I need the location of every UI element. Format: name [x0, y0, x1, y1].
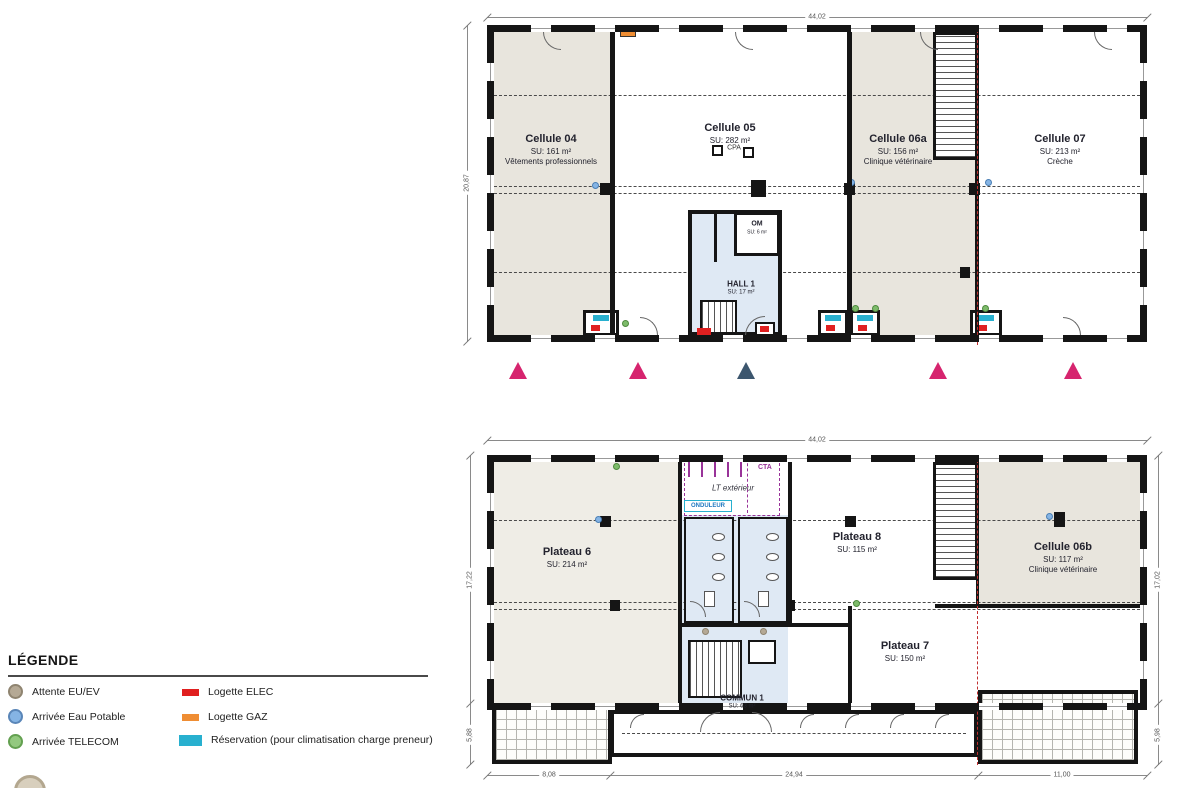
entry-triangle-pink	[629, 362, 647, 379]
room-label-plateau-7: Plateau 7 SU: 150 m²	[810, 640, 1000, 664]
dimension-line	[487, 775, 1147, 776]
room-area: SU: 63 m²	[647, 703, 837, 711]
door-arc	[1063, 317, 1081, 335]
partition-wall	[678, 623, 850, 627]
eau-dot	[985, 179, 992, 186]
door-arc	[1094, 32, 1112, 50]
joint-line	[977, 25, 978, 345]
wall-corner	[1140, 703, 1147, 710]
wall-corner	[487, 703, 494, 710]
door-arc	[735, 32, 753, 50]
room-area: SU: 17 m²	[646, 289, 836, 297]
room-area: SU: 150 m²	[810, 654, 1000, 664]
eau-dot	[592, 182, 599, 189]
legend-item-reservation: Réservation (pour climatisation charge p…	[179, 734, 433, 746]
dashed-gridline	[494, 520, 1140, 521]
exterior-wall	[487, 335, 1147, 342]
partition-wall	[610, 32, 615, 335]
cellule-06b-area	[978, 462, 1140, 604]
telecom-icon	[8, 734, 23, 749]
legend-item-label: Arrivée Eau Potable	[32, 711, 125, 723]
legend-title: LÉGENDE	[8, 652, 78, 668]
gridline-node	[610, 600, 620, 611]
telecom-dot	[622, 320, 629, 327]
reservation-mark	[825, 315, 841, 321]
hall-label: HALL 1 SU: 17 m²	[646, 279, 836, 297]
room-title: Cellule 06b	[968, 541, 1158, 555]
heater-fixture	[704, 591, 715, 607]
reservation-mark	[978, 315, 994, 321]
elec-mark	[591, 325, 600, 331]
room-area: SU: 6 m²	[662, 229, 852, 235]
wall-corner	[487, 335, 494, 342]
legend-item-eau-potable: Arrivée Eau Potable	[8, 709, 125, 724]
logette-elec-icon	[182, 689, 199, 696]
dimension-line	[470, 455, 471, 765]
commun-stair	[688, 640, 742, 698]
eau-dot	[595, 516, 602, 523]
elec-mark	[760, 326, 769, 332]
room-label-cellule-07: Cellule 07 SU: 213 m² Crèche	[965, 133, 1155, 167]
exterior-wall	[1140, 25, 1147, 342]
logette-alcove	[818, 310, 848, 336]
room-label-plateau-8: Plateau 8 SU: 115 m²	[762, 531, 952, 555]
wc-fixture	[712, 553, 725, 561]
heater-fixture	[758, 591, 769, 607]
entry-triangle-pink	[1064, 362, 1082, 379]
room-label-cellule-04: Cellule 04 SU: 161 m² Vêtements professi…	[456, 133, 646, 167]
room-area: SU: 115 m²	[762, 545, 952, 555]
wc-fixture	[766, 573, 779, 581]
dashed-gridline	[622, 733, 966, 734]
dimension-line	[1158, 455, 1159, 765]
eau-potable-icon	[8, 709, 23, 724]
dimension-label: 5,98	[1155, 725, 1162, 745]
dimension-label: 44,02	[805, 437, 829, 444]
room-title: Cellule 07	[965, 133, 1155, 147]
logette-alcove	[755, 322, 775, 336]
dimension-label: 20,87	[464, 171, 471, 195]
joint-line	[977, 455, 978, 765]
room-title: COMMUN 1	[647, 693, 837, 703]
wall-corner	[487, 25, 494, 32]
partition-wall	[935, 604, 1143, 608]
attente-euev-icon	[8, 684, 23, 699]
dimension-label: 17,22	[467, 568, 474, 592]
cpa-box	[743, 147, 754, 158]
room-title: Cellule 04	[456, 133, 646, 147]
legend-item-logette-gaz: Logette GAZ	[182, 711, 268, 723]
cta-boundary	[747, 458, 748, 513]
dashed-gridline	[494, 193, 1140, 194]
exterior-wall	[487, 25, 1147, 32]
wc-fixture	[712, 533, 725, 541]
room-tenant: Clinique vétérinaire	[968, 565, 1158, 575]
legend-cropped-symbol	[14, 775, 46, 788]
dashed-gridline	[494, 272, 1140, 273]
room-tenant: Crèche	[965, 157, 1155, 167]
logette-gaz-icon	[182, 714, 199, 721]
telecom-dot	[853, 600, 860, 607]
partition-wall	[847, 32, 852, 335]
room-title: OM	[662, 221, 852, 230]
gridline-node	[751, 180, 766, 197]
room-label-commun-1: COMMUN 1 SU: 63 m²	[647, 693, 837, 711]
dimension-label: 11,00	[1051, 772, 1074, 779]
partition-wall	[678, 462, 682, 703]
cta-label: CTA	[758, 464, 772, 471]
legend-item-telecom: Arrivée TELECOM	[8, 734, 119, 749]
wall-corner	[1140, 455, 1147, 462]
eau-dot	[1046, 513, 1053, 520]
room-area: SU: 213 m²	[965, 147, 1155, 157]
room-title: Plateau 7	[810, 640, 1000, 654]
gridline-node	[845, 516, 856, 527]
dimension-label: 24,94	[782, 772, 806, 779]
telecom-dot	[852, 305, 859, 312]
wc-fixture	[712, 573, 725, 581]
room-label-plateau-6: Plateau 6 SU: 214 m²	[472, 546, 662, 570]
room-area: SU: 282 m²	[635, 136, 825, 146]
dashed-gridline	[494, 95, 1140, 96]
room-title: HALL 1	[646, 279, 836, 289]
dashed-gridline	[494, 602, 1140, 603]
telecom-dot	[872, 305, 879, 312]
telecom-dot	[982, 305, 989, 312]
legend-item-label: Logette ELEC	[208, 686, 273, 698]
entry-triangle-navy	[737, 362, 755, 379]
wall-corner	[1140, 25, 1147, 32]
elec-mark	[978, 325, 987, 331]
door-arc	[640, 317, 658, 335]
wall-corner	[1140, 335, 1147, 342]
dimension-label: 17,02	[1155, 568, 1162, 592]
logette-alcove	[850, 310, 880, 336]
legend-item-attente-euev: Attente EU/EV	[8, 684, 100, 699]
shaft	[748, 640, 776, 664]
gridline-node	[960, 267, 970, 278]
room-title: Plateau 8	[762, 531, 952, 545]
cta-ticks	[688, 462, 746, 477]
reservation-icon	[179, 735, 202, 746]
room-area: SU: 117 m²	[968, 555, 1158, 565]
exterior-wall	[487, 455, 494, 710]
room-title: Cellule 05	[635, 122, 825, 136]
entry-triangle-pink	[929, 362, 947, 379]
room-tenant: Vêtements professionnels	[456, 157, 646, 167]
reservation-mark	[857, 315, 873, 321]
legend-item-label: Réservation (pour climatisation charge p…	[211, 734, 433, 746]
exterior-wall	[1140, 455, 1147, 710]
gridline-node	[1054, 512, 1065, 527]
exterior-wall	[487, 25, 494, 342]
telecom-dot	[613, 463, 620, 470]
cpa-box	[712, 145, 723, 156]
dimension-label: 44,02	[805, 14, 829, 21]
legend-item-label: Attente EU/EV	[32, 686, 100, 698]
dimension-label: 5,88	[467, 725, 474, 745]
euev-dot	[702, 628, 709, 635]
room-area: SU: 161 m²	[456, 147, 646, 157]
reservation-mark	[593, 315, 609, 321]
dimension-label: 8,08	[539, 772, 559, 779]
dashed-gridline	[494, 609, 1140, 610]
onduleur-box: ONDULEUR	[684, 500, 732, 512]
om-label: OM SU: 6 m²	[662, 221, 852, 236]
room-title: Plateau 6	[472, 546, 662, 560]
partition-wall	[714, 212, 717, 262]
elec-mark	[826, 325, 835, 331]
room-area: SU: 214 m²	[472, 560, 662, 570]
room-label-cellule-05: Cellule 05 SU: 282 m²	[635, 122, 825, 146]
floorplan-sheet: OM SU: 6 m² HALL 1 SU: 17 m² CPA	[0, 0, 1200, 788]
legend-item-logette-elec: Logette ELEC	[182, 686, 273, 698]
legend-rule	[8, 675, 428, 677]
wall-corner	[487, 455, 494, 462]
sanitary-room	[684, 517, 734, 623]
room-label-cellule-06b: Cellule 06b SU: 117 m² Clinique vétérina…	[968, 541, 1158, 575]
dashed-gridline	[494, 186, 1140, 187]
exterior-wall	[487, 455, 1147, 462]
euev-dot	[760, 628, 767, 635]
elec-mark	[858, 325, 867, 331]
legend-item-label: Logette GAZ	[208, 711, 268, 723]
entry-triangle-pink	[509, 362, 527, 379]
terrace	[978, 690, 1138, 764]
plateau-6-area	[494, 462, 680, 703]
legend-item-label: Arrivée TELECOM	[32, 736, 119, 748]
